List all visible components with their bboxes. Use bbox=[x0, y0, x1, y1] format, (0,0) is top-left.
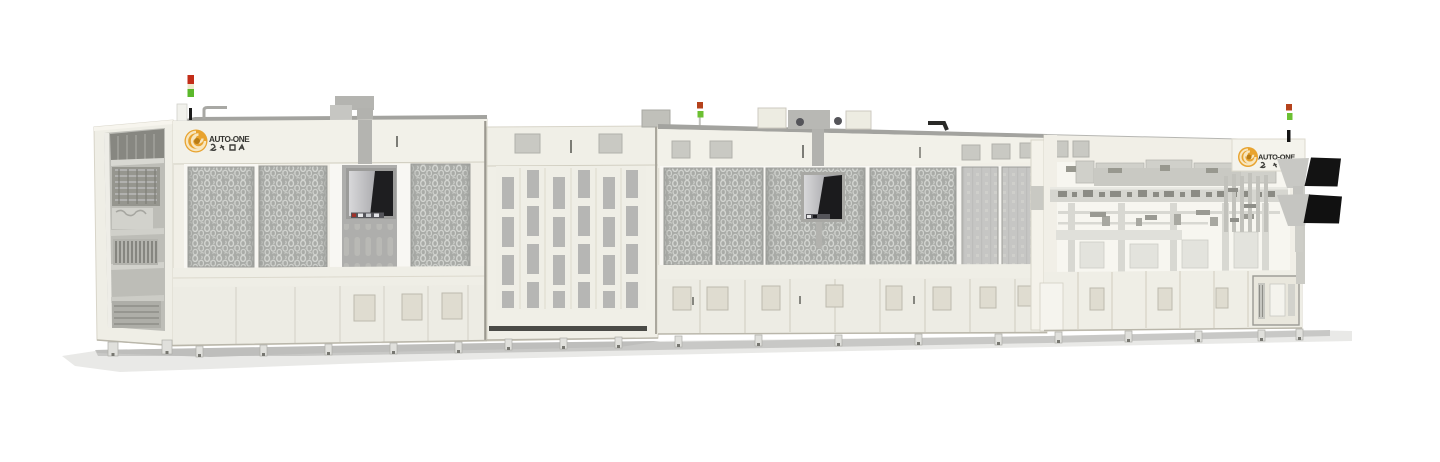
svg-text:AUTO-ONE: AUTO-ONE bbox=[209, 135, 250, 144]
